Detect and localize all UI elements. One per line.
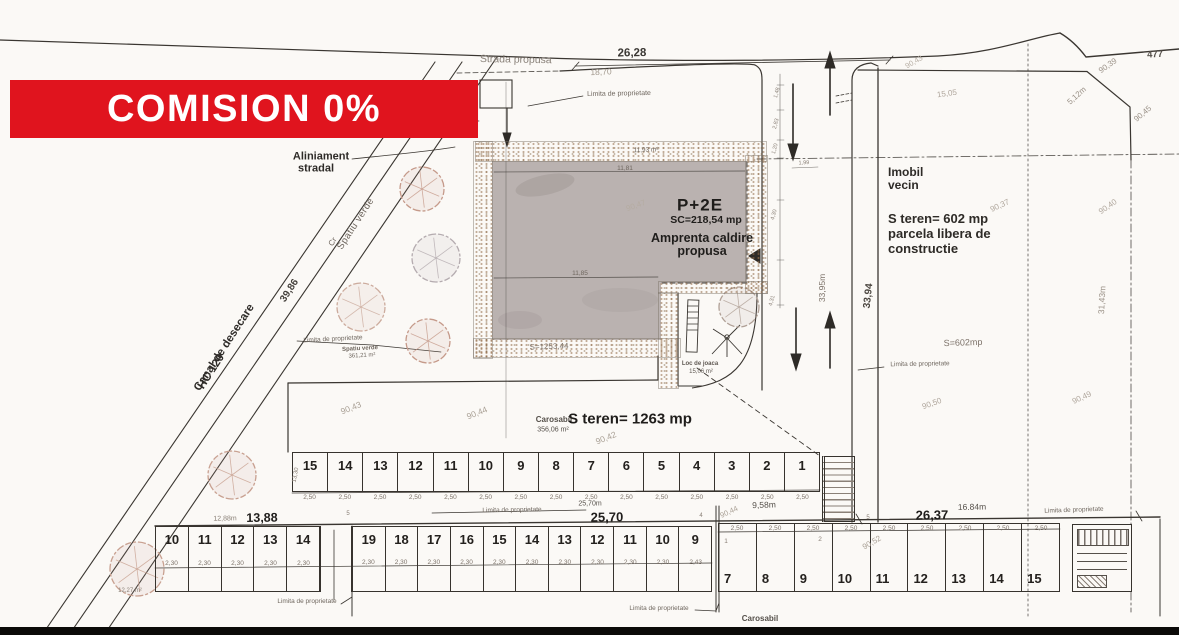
dim-label: 2,30 <box>450 559 483 566</box>
dim-label: 2,50 <box>756 525 794 532</box>
imobil-vecin-label: Imobil <box>888 166 923 178</box>
imobil-vecin-label: vecin <box>888 179 919 191</box>
dim-label: 2,50 <box>398 494 433 501</box>
dim-label: 2,50 <box>503 494 538 501</box>
area-value: 15,06 m² <box>689 369 713 375</box>
dim-25-70: 25,70 <box>591 510 624 524</box>
parcel-cell: 14 <box>984 524 1022 591</box>
terrain-area-label: S teren= 1263 mp <box>568 412 692 427</box>
dim-label: 2,50 <box>946 525 984 532</box>
parcel-cell: 15 <box>1022 524 1059 591</box>
road-arrow-down-icon <box>791 308 801 370</box>
dim-row-top: 2,502,502,502,502,502,502,502,502,502,50… <box>292 494 820 501</box>
dim-label: 2,50 <box>718 525 756 532</box>
dim-label: 2,43 <box>679 559 712 566</box>
legend-hatch-icon <box>1077 575 1107 588</box>
parcel-cell: 13 <box>254 527 287 591</box>
parcel-cell: 7 <box>574 453 609 491</box>
parcel-row-bottom-a: 1011121314 <box>155 526 320 592</box>
tick-label: 2 <box>818 537 822 544</box>
dim-label: 2,50 <box>1022 525 1060 532</box>
dim-label: 2,30 <box>385 559 418 566</box>
whirligig-icon <box>712 325 742 357</box>
carosabil-label: Carosabil <box>742 615 778 623</box>
dim-label: 2,50 <box>714 494 749 501</box>
dim-label: 2,30 <box>188 560 221 567</box>
tick-label: 5 <box>346 511 349 517</box>
parcel-cell: 6 <box>609 453 644 491</box>
dim-13-88: 13,88 <box>246 511 277 524</box>
dim-label: 2,30 <box>581 559 614 566</box>
road-arrow-up-icon <box>825 312 835 368</box>
parcel-cell: 13 <box>946 524 984 591</box>
parcel-cell: 9 <box>504 453 539 491</box>
dim-25-70m: 25,70m <box>578 501 601 508</box>
dim-label: 2,30 <box>352 559 385 566</box>
parcel-cell: 7 <box>719 524 757 591</box>
parcel-cell: 11 <box>434 453 469 491</box>
parcel-cell: 8 <box>757 524 795 591</box>
parcel-cell: 2 <box>750 453 785 491</box>
dim-row-right: 2,502,502,502,502,502,502,502,502,50 <box>718 525 1060 532</box>
property-limit-label: Limita de proprietate <box>890 361 949 369</box>
parcel-row-top: 151413121110987654321 <box>292 452 820 492</box>
dim-12-88: 12,88m <box>213 515 236 522</box>
tree-icon <box>412 234 460 282</box>
gravel-band <box>474 339 680 357</box>
dim-label: 1,99 <box>799 161 810 167</box>
parcel-cell: 13 <box>363 453 398 491</box>
area-value: 356,06 m² <box>537 427 569 434</box>
site-plan: 151413121110987654321 2,502,502,502,502,… <box>0 0 1179 635</box>
dim-label: 2,30 <box>155 560 188 567</box>
parcel-cell: 8 <box>539 453 574 491</box>
gravel-band <box>474 142 492 358</box>
right-plot-area: constructie <box>888 242 958 255</box>
parcel-cell: 9 <box>795 524 833 591</box>
parcel-row-right: 789101112131415 <box>718 523 1060 592</box>
right-plot-area: parcela libera de <box>888 227 991 240</box>
dim-label: 2,50 <box>433 494 468 501</box>
parcel-cell: 10 <box>833 524 871 591</box>
legend-box <box>1072 524 1132 592</box>
dim-26-28: 26,28 <box>618 48 647 60</box>
parcel-cell: 12 <box>398 453 433 491</box>
dim-label: 2,50 <box>292 494 327 501</box>
dim-33-95: 33,95m <box>818 274 827 302</box>
parcel-cell: 10 <box>156 527 189 591</box>
parcel-cell: 11 <box>189 527 222 591</box>
dim-label: 2,30 <box>483 559 516 566</box>
aliniament-label: Aliniament <box>293 152 349 163</box>
area-value: 11,93 m² <box>633 147 658 154</box>
parcel-cell: 14 <box>287 527 319 591</box>
property-limit-label: Limita de proprietate <box>587 90 651 98</box>
property-limit-label: Limita de proprietate <box>629 606 688 613</box>
carosabil-label: Carosabil <box>536 416 572 424</box>
building-caption: Amprenta caldire <box>651 232 753 245</box>
legend-hatch-icon <box>1077 529 1129 546</box>
tree-icon <box>400 167 444 211</box>
promo-banner: COMISION 0% <box>10 80 478 138</box>
parcel-cell: 12 <box>908 524 946 591</box>
parking-hatch <box>822 456 855 522</box>
road-arrow-down-icon <box>788 84 798 160</box>
dim-11-85: 11,85 <box>572 271 588 278</box>
street-name: Strada propusa <box>480 54 552 66</box>
slide-icon <box>686 300 699 352</box>
dim-label: 2,50 <box>468 494 503 501</box>
parcel-cell: 10 <box>469 453 504 491</box>
parcel-cell: 4 <box>680 453 715 491</box>
dim-label: 2,30 <box>614 559 647 566</box>
parcel-cell: 5 <box>644 453 679 491</box>
right-plot-area: S teren= 602 mp <box>888 212 988 225</box>
area-s-label: S=602mp <box>943 338 982 348</box>
dim-label: 2,30 <box>287 560 320 567</box>
dim-label: 2,30 <box>221 560 254 567</box>
dim-label: 2,50 <box>794 525 832 532</box>
dim-label: 2,50 <box>327 494 362 501</box>
dim-18-70: 18,70 <box>590 67 612 76</box>
dim-16-84: 16.84m <box>958 503 987 512</box>
building-title: P+2E <box>677 197 723 214</box>
tick-label: 1 <box>724 539 728 546</box>
dim-label: 2,50 <box>984 525 1022 532</box>
dim-26-37: 26,37 <box>916 508 949 522</box>
aliniament-label: stradal <box>298 164 334 175</box>
dim-label: 2,30 <box>254 560 287 567</box>
dim-label: 2,50 <box>538 494 573 501</box>
dim-label: 2,50 <box>870 525 908 532</box>
parcel-cell: 12 <box>222 527 255 591</box>
building-caption: propusa <box>677 245 726 258</box>
playground-label: Loc de joaca <box>682 361 718 367</box>
dim-label: 2,50 <box>609 494 644 501</box>
tree-icon <box>406 319 450 363</box>
dim-label: 2,50 <box>679 494 714 501</box>
parcel-cell: 3 <box>715 453 750 491</box>
bottom-bar <box>0 627 1179 635</box>
dim-label: 2,30 <box>516 559 549 566</box>
area-value: 12,27 m² <box>118 588 142 594</box>
property-limit-label: Limita de proprietate <box>277 599 336 606</box>
parcel-gap-strip <box>320 526 352 592</box>
tree-icon <box>719 287 759 327</box>
dim-label: 2,30 <box>647 559 680 566</box>
area-s-label: S=1253,44 <box>529 342 568 351</box>
dim-label: 2,50 <box>785 494 820 501</box>
dim-31-43: 31,43m <box>1097 286 1107 315</box>
dim-477: 477 <box>1147 50 1163 60</box>
dim-label: 2,50 <box>832 525 870 532</box>
tick-label: 5 <box>866 515 869 521</box>
dim-label: 2,30 <box>548 559 581 566</box>
dim-row-bottom-b: 2,302,302,302,302,302,302,302,302,302,30… <box>352 559 712 566</box>
tick-label: 4 <box>699 513 702 519</box>
parcel-cell: 1 <box>785 453 819 491</box>
parcel-cell: 14 <box>328 453 363 491</box>
dim-label: 2,30 <box>417 559 450 566</box>
tree-icon <box>208 451 256 499</box>
tree-icon <box>337 283 385 331</box>
dim-row-bottom-a: 2,302,302,302,302,30 <box>155 560 320 567</box>
building-area: SC=218,54 mp <box>670 215 742 226</box>
dim-label: 2,50 <box>908 525 946 532</box>
gravel-band <box>746 156 767 293</box>
dim-label: 2,50 <box>362 494 397 501</box>
dim-9-58: 9,58m <box>752 500 776 509</box>
dim-11-81: 11,81 <box>617 166 633 173</box>
gravel-band <box>659 293 678 388</box>
gravel-band <box>476 142 766 161</box>
gravel-band <box>659 282 767 293</box>
dim-label: 2,50 <box>644 494 679 501</box>
property-limit-label: Limita de proprietate <box>482 507 541 515</box>
